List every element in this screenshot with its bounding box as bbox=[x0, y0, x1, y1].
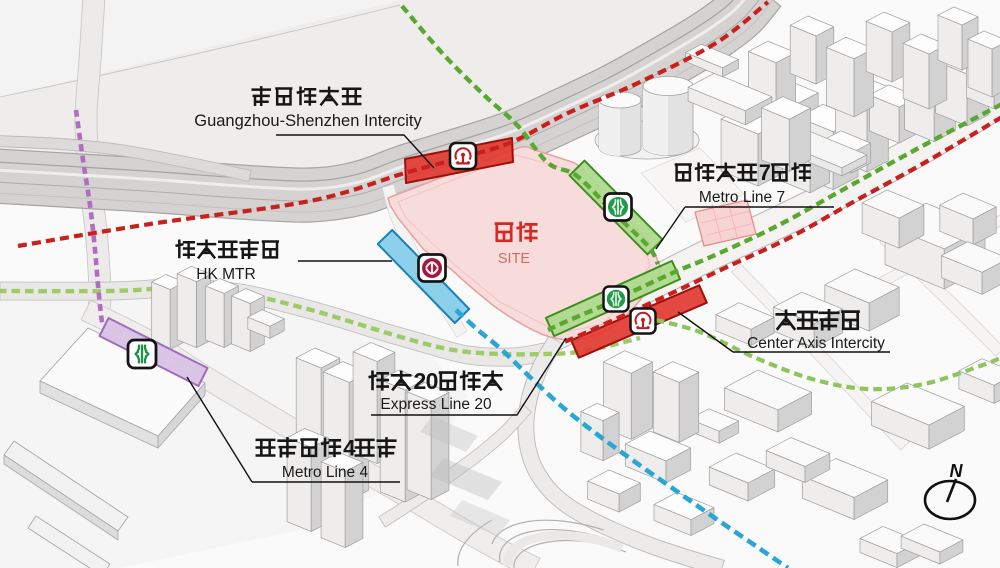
svg-text:Express Line 20: Express Line 20 bbox=[380, 396, 492, 413]
svg-text:N: N bbox=[950, 461, 964, 481]
svg-text:Metro Line 4: Metro Line 4 bbox=[282, 464, 369, 481]
svg-text:4: 4 bbox=[343, 436, 356, 461]
svg-text:Metro Line 7: Metro Line 7 bbox=[699, 189, 785, 206]
svg-text:HK MTR: HK MTR bbox=[196, 266, 255, 283]
svg-text:Guangzhou-Shenzhen Intercity: Guangzhou-Shenzhen Intercity bbox=[194, 112, 422, 130]
svg-text:SITE: SITE bbox=[498, 251, 531, 267]
svg-text:Center Axis Intercity: Center Axis Intercity bbox=[747, 335, 885, 352]
svg-text:0: 0 bbox=[426, 368, 439, 394]
svg-text:2: 2 bbox=[414, 368, 427, 394]
svg-text:7: 7 bbox=[759, 160, 771, 185]
